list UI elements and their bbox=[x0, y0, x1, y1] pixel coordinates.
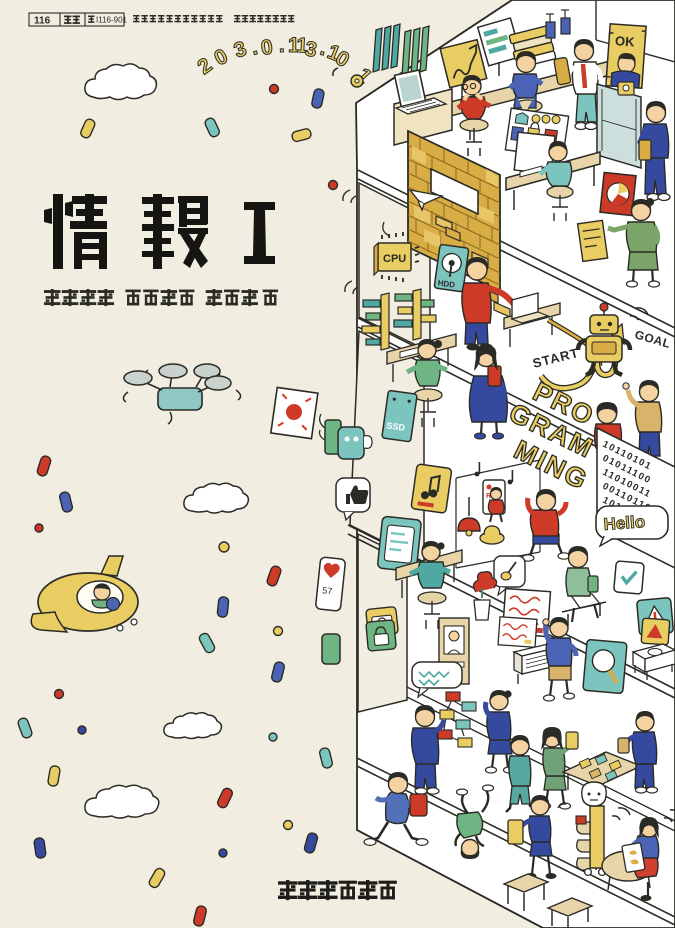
svg-text:.: . bbox=[278, 34, 285, 57]
svg-text:CPU: CPU bbox=[383, 253, 406, 265]
svg-text:OK: OK bbox=[615, 33, 636, 49]
svg-text:I116-901: I116-901 bbox=[96, 16, 128, 25]
svg-text:116: 116 bbox=[34, 16, 51, 27]
svg-text:Hello: Hello bbox=[603, 512, 646, 534]
svg-text:57: 57 bbox=[322, 585, 333, 596]
